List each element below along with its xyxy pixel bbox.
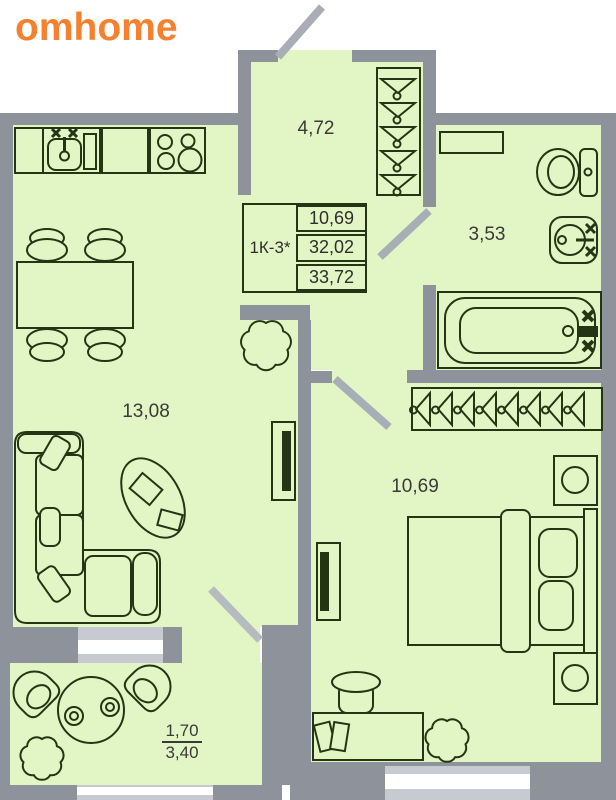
toilet-icon (537, 149, 597, 196)
legend-value-total: 33,72 (296, 264, 365, 291)
balcony-area-coefficient: 1,70 (162, 721, 201, 743)
wardrobe-hallway-icon (377, 68, 420, 196)
balcony-area-total: 3,40 (146, 743, 218, 762)
bed-icon (408, 509, 597, 653)
washbasin-icon (550, 217, 597, 263)
legend-value-living: 10,69 (296, 205, 365, 232)
tv-living-icon (272, 422, 295, 500)
unit-legend-table: 1К-3* 10,69 32,02 33,72 (242, 203, 367, 293)
window-glass (385, 774, 530, 789)
nightstand-icon (554, 456, 597, 505)
tv-bedroom-icon (317, 543, 340, 620)
hallway-area-label: 4,72 (280, 118, 352, 140)
window-glass (77, 787, 213, 795)
window-glass (78, 640, 163, 654)
kitchen-counter-icon (15, 128, 205, 173)
living-area-label: 13,08 (110, 401, 182, 423)
entrance-door-swing (278, 7, 322, 57)
nightstand-icon (554, 653, 597, 704)
unit-type-label: 1К-3* (244, 205, 296, 291)
floorplan-page: omhome (0, 0, 616, 800)
dining-table-icon (17, 262, 133, 328)
legend-value-area: 32,02 (296, 234, 365, 261)
balcony-area-label: 1,70 3,40 (146, 721, 218, 762)
entrance-opening (278, 50, 352, 64)
wardrobe-bedroom-icon (410, 388, 602, 430)
bathroom-shelf-icon (440, 132, 503, 153)
bathroom-area-label: 3,53 (451, 224, 523, 246)
balcony-table-icon (58, 677, 124, 743)
bathtub-icon (438, 292, 601, 368)
bedroom-area-label: 10,69 (379, 476, 451, 498)
